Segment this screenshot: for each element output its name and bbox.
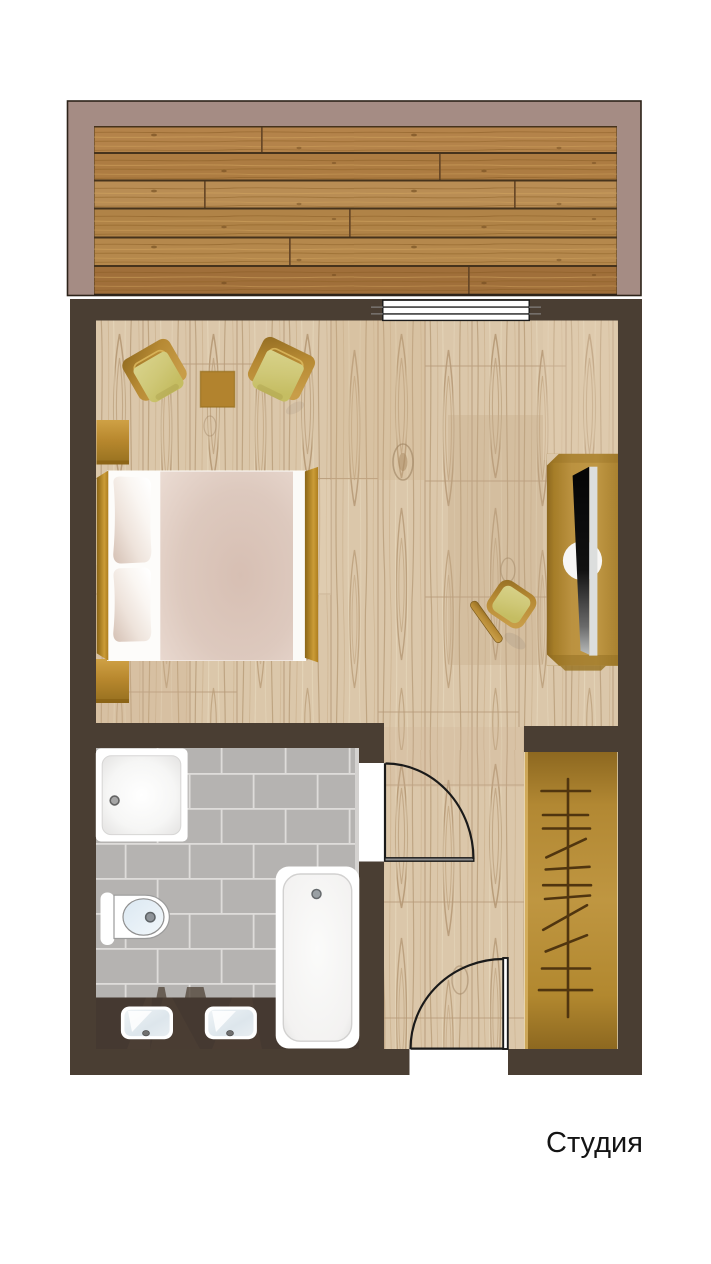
svg-text:Студия: Студия [546, 1127, 643, 1159]
